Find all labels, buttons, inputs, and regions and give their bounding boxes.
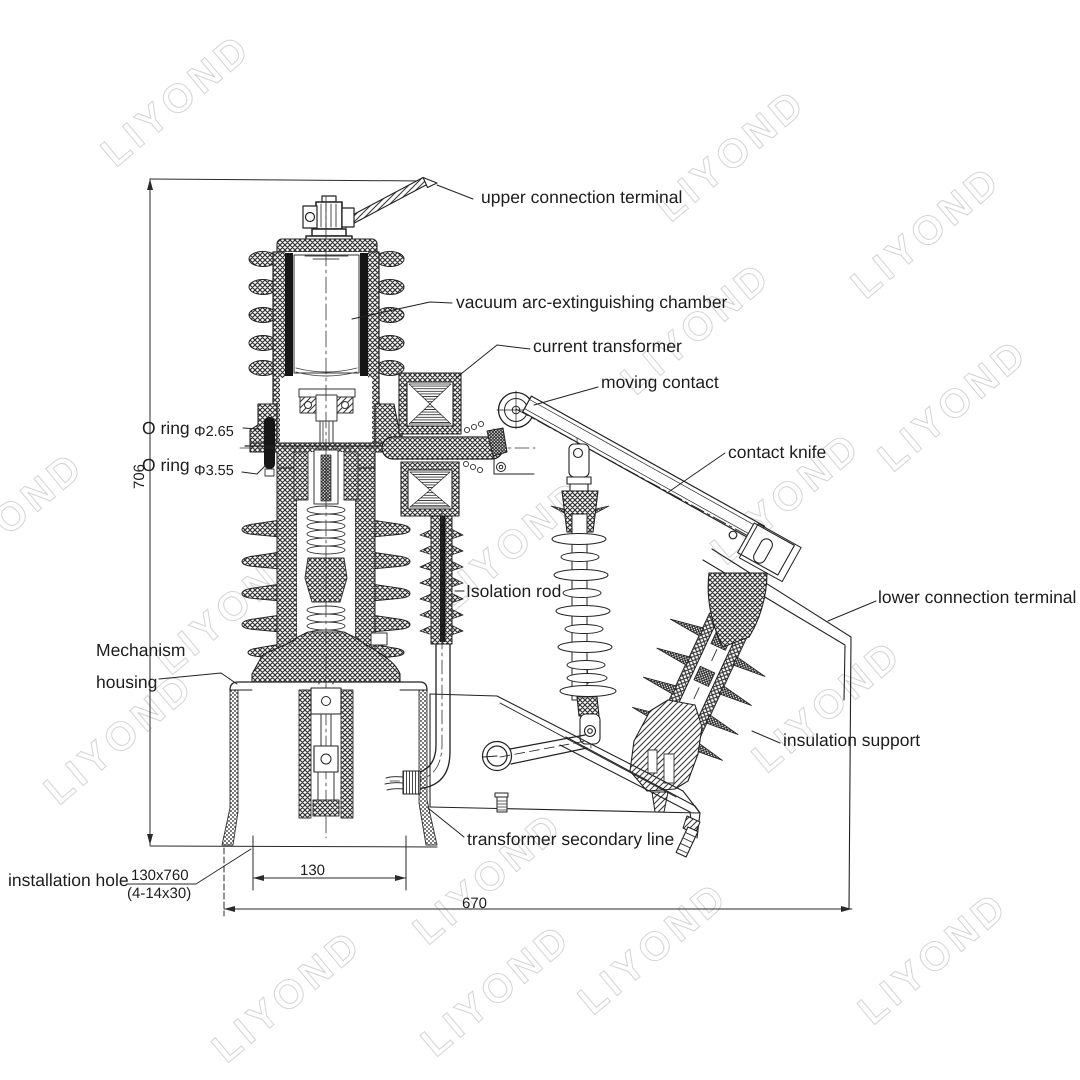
svg-text:O ring: O ring	[142, 418, 190, 438]
svg-text:moving contact: moving contact	[601, 372, 719, 392]
svg-text:current transformer: current transformer	[533, 336, 682, 356]
svg-text:vacuum arc-extinguishing chamb: vacuum arc-extinguishing chamber	[456, 292, 728, 312]
svg-text:contact knife: contact knife	[728, 442, 826, 462]
svg-text:installation hole: installation hole	[8, 870, 129, 890]
svg-text:670: 670	[462, 895, 487, 912]
svg-text:housing: housing	[96, 672, 157, 692]
svg-text:transformer secondary line: transformer secondary line	[467, 829, 674, 849]
svg-text:lower connection terminal: lower connection terminal	[878, 587, 1076, 607]
svg-text:upper connection terminal: upper connection terminal	[481, 187, 682, 207]
svg-text:Φ2.65: Φ2.65	[194, 424, 234, 440]
svg-text:(4-14x30): (4-14x30)	[127, 885, 191, 902]
svg-text:130: 130	[300, 862, 325, 879]
svg-text:Isolation rod: Isolation rod	[466, 581, 561, 601]
svg-text:O ring: O ring	[142, 455, 190, 475]
svg-text:130x760: 130x760	[131, 867, 189, 884]
svg-text:insulation support: insulation support	[783, 730, 920, 750]
svg-text:Mechanism: Mechanism	[96, 640, 185, 660]
svg-text:Φ3.55: Φ3.55	[194, 463, 234, 479]
